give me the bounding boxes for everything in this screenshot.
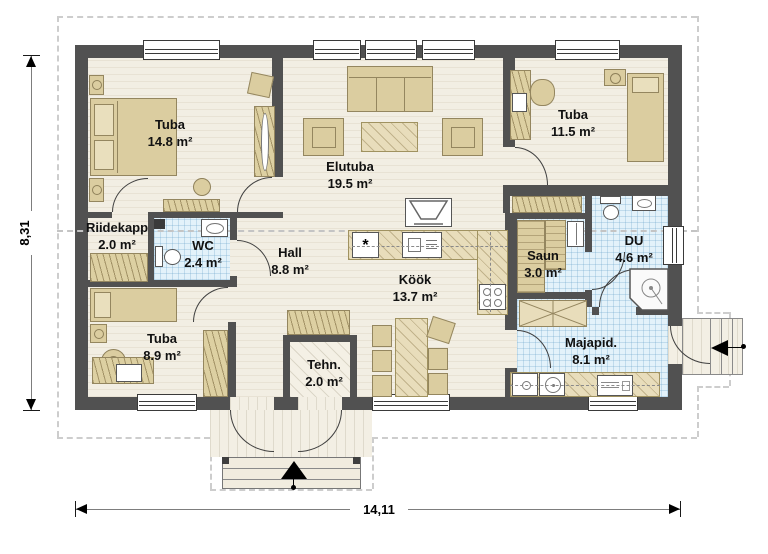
roof-outline-right-top — [697, 16, 699, 312]
freezer: * — [352, 232, 379, 258]
room-area: 8.1 m² — [549, 351, 633, 368]
wall-segment — [148, 212, 283, 218]
wall-segment — [517, 292, 592, 299]
room-area: 13.7 m² — [374, 288, 456, 305]
room-area: 8.8 m² — [254, 261, 326, 278]
dimension-label-height: 8,31 — [16, 211, 34, 255]
armchair — [442, 118, 483, 156]
stove — [479, 284, 506, 310]
room-label-wc: WC 2.4 m² — [167, 237, 239, 271]
single-bed — [90, 288, 177, 322]
room-label-riidekapp: Riidekapp 2.0 m² — [76, 219, 158, 253]
room-area: 4.6 m² — [598, 249, 670, 266]
hallway-closet — [512, 196, 582, 213]
side-entrance-arrow-dot — [741, 344, 746, 349]
room-label-saun: Saun 3.0 m² — [507, 247, 579, 281]
room-area: 19.5 m² — [305, 175, 395, 192]
dimension-tick — [680, 501, 681, 517]
dimension-label-width: 14,11 — [350, 501, 408, 518]
nightstand — [89, 178, 104, 202]
roof-outline-bottom-right — [372, 437, 697, 439]
room-label-elutuba: Elutuba 19.5 m² — [305, 158, 395, 192]
closet-rail — [90, 253, 148, 282]
window — [555, 40, 620, 60]
entrance-arrow-dot — [291, 485, 296, 490]
window — [143, 40, 220, 60]
room-label-majapid: Majapid. 8.1 m² — [549, 334, 633, 368]
porch-post — [353, 457, 360, 464]
room-name: Tuba — [122, 330, 202, 347]
room-label-hall: Hall 8.8 m² — [254, 244, 326, 278]
nightstand — [604, 69, 626, 86]
chair — [372, 325, 392, 347]
room-area: 3.0 m² — [507, 264, 579, 281]
stool — [193, 178, 211, 196]
room-area: 2.0 m² — [76, 236, 158, 253]
wall-segment — [505, 213, 592, 219]
nightstand — [89, 75, 104, 95]
sofa — [347, 66, 433, 112]
sauna-heater — [567, 221, 584, 247]
water-heater-cabinet — [519, 300, 587, 327]
dimension-tick — [23, 410, 40, 411]
chair — [247, 72, 274, 98]
window — [137, 394, 197, 411]
wall-segment — [585, 196, 592, 252]
room-name: Hall — [254, 244, 326, 261]
chair — [372, 375, 392, 397]
roof-outline-bottom-left — [57, 437, 210, 439]
room-area: 8.9 m² — [122, 347, 202, 364]
upper-cabinet-line — [352, 246, 508, 247]
toilet-bowl — [603, 205, 619, 220]
wall-segment — [228, 322, 236, 397]
floor-plan: * — [0, 0, 768, 554]
room-name: Tuba — [533, 106, 613, 123]
room-name: Tehn. — [288, 356, 360, 373]
roof-outline-left — [57, 16, 59, 437]
door-opening — [230, 397, 274, 410]
wardrobe — [203, 330, 228, 397]
dining-table — [395, 318, 428, 397]
wall-segment — [88, 212, 112, 218]
room-label-tuba2: Tuba 11.5 m² — [533, 106, 613, 140]
room-name: Riidekapp — [76, 219, 158, 236]
roof-outline-top — [57, 16, 697, 18]
roof-outline-right-bottom — [697, 386, 699, 437]
room-name: DU — [598, 232, 670, 249]
room-label-kook: Köök 13.7 m² — [374, 271, 456, 305]
chair — [372, 350, 392, 372]
washbasin — [632, 195, 656, 211]
chair — [428, 348, 448, 370]
wall-segment — [230, 276, 237, 281]
porch-post — [222, 457, 229, 464]
window — [422, 40, 475, 60]
door-opening — [298, 397, 342, 410]
room-area: 14.8 m² — [130, 133, 210, 150]
side-canopy-bottom — [697, 386, 729, 388]
wall-segment — [592, 307, 599, 315]
porch-roof-right — [372, 437, 374, 489]
window — [313, 40, 361, 60]
room-label-du: DU 4.6 m² — [598, 232, 670, 266]
room-label-tehn: Tehn. 2.0 m² — [288, 356, 360, 390]
dresser — [116, 364, 142, 382]
chair — [428, 373, 448, 395]
coffee-table — [361, 122, 418, 152]
tv-stand — [405, 198, 452, 227]
side-canopy-top — [697, 312, 729, 314]
single-bed — [627, 73, 664, 162]
dimension-arrow-right — [669, 504, 680, 514]
upper-cabinet-line — [490, 232, 491, 312]
desk-lamp — [512, 93, 527, 112]
room-name: Köök — [374, 271, 456, 288]
wardrobe-mirror — [254, 106, 275, 177]
toilet — [600, 196, 621, 204]
kitchen-sink — [402, 232, 442, 258]
shower-cabin — [629, 268, 669, 311]
room-label-tuba1: Tuba 14.8 m² — [130, 116, 210, 150]
room-name: Saun — [507, 247, 579, 264]
wall-segment — [283, 335, 357, 342]
entrance-arrow-icon — [281, 461, 307, 479]
nightstand — [90, 324, 107, 343]
hall-wardrobe — [287, 310, 350, 335]
room-name: Majapid. — [549, 334, 633, 351]
room-name: Tuba — [130, 116, 210, 133]
window — [365, 40, 417, 60]
room-area: 2.4 m² — [167, 254, 239, 271]
washbasin — [201, 219, 228, 237]
dimension-arrow-down — [26, 399, 36, 410]
dimension-arrow-left — [76, 504, 87, 514]
room-area: 2.0 m² — [288, 373, 360, 390]
room-name: Elutuba — [305, 158, 395, 175]
side-entrance-arrow-icon — [711, 340, 728, 356]
room-area: 11.5 m² — [533, 123, 613, 140]
office-chair — [530, 79, 555, 106]
armchair — [303, 118, 344, 156]
room-name: WC — [167, 237, 239, 254]
dresser — [163, 199, 220, 212]
room-label-tuba3: Tuba 8.9 m² — [122, 330, 202, 364]
wall-segment — [503, 196, 510, 213]
upper-cabinet-line — [510, 385, 660, 386]
dimension-arrow-up — [26, 56, 36, 67]
